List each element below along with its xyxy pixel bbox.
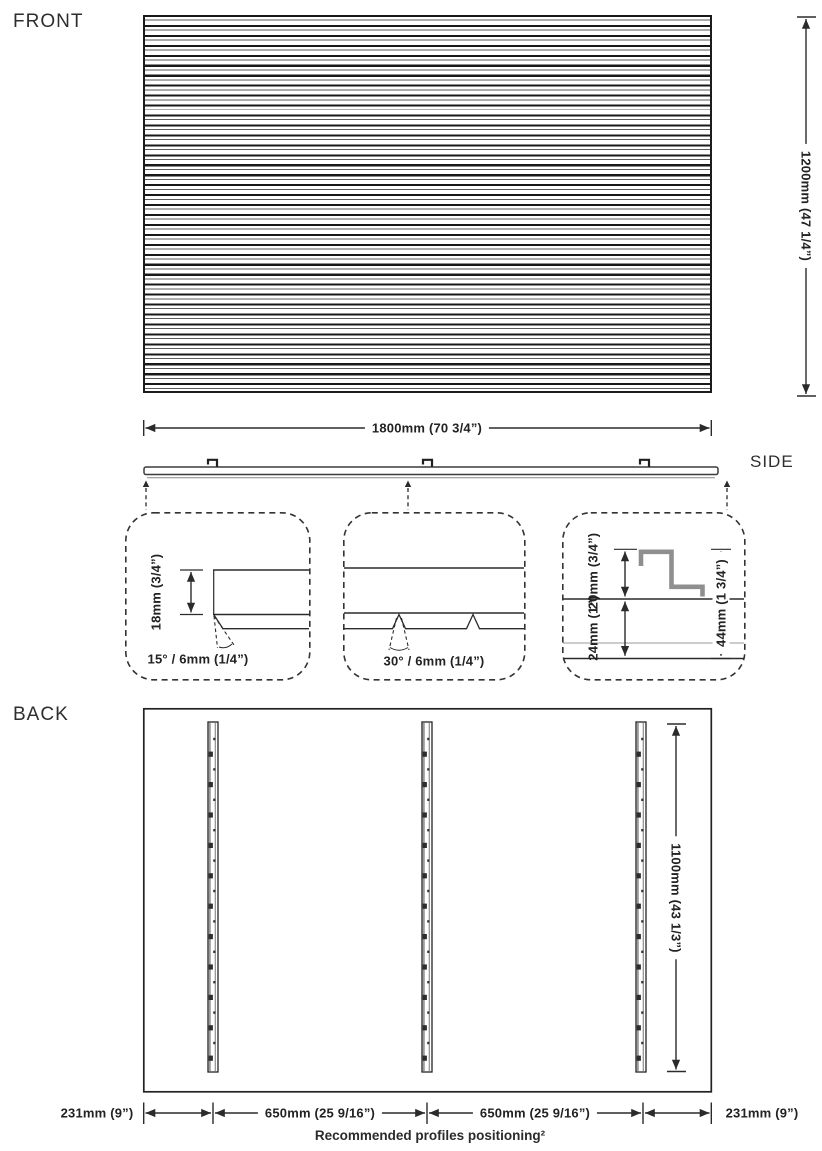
back-profile-rail-middle — [422, 722, 432, 1072]
back-profile-height-dimension-label: 1100mm (43 1/3”) — [668, 836, 685, 959]
back-profile-rail-right — [636, 722, 646, 1072]
side-section-label: SIDE — [750, 452, 794, 472]
front-section-label: FRONT — [13, 11, 83, 33]
side-panel-bar — [144, 467, 718, 478]
profiles-positioning-caption: Recommended profiles positioning² — [315, 1128, 545, 1143]
back-left-offset-dimension-label: 231mm (9”) — [61, 1106, 134, 1121]
detail-slat-groove-drawing — [344, 568, 524, 650]
back-spacing-dimensions — [144, 1103, 712, 1125]
front-height-dimension-label: 1200mm (47 1/4”) — [798, 144, 815, 268]
drawing-linework — [0, 0, 822, 1151]
back-right-offset-dimension-label: 231mm (9”) — [726, 1106, 799, 1121]
technical-drawing-sheet: FRONT SIDE BACK 1200mm (47 1/4”) 1800mm … — [0, 0, 822, 1151]
slat-chamfer-dimension-label: 15° / 6mm (1/4”) — [148, 652, 249, 667]
back-spacing-left-dimension-label: 650mm (25 9/16”) — [258, 1105, 382, 1122]
mounting-clip-icons — [208, 460, 649, 467]
back-section-label: BACK — [13, 704, 69, 726]
clip-gap-dimension-label: 24mm (1”) — [586, 595, 601, 660]
clip-total-dimension-label: 44mm (1 3/4”) — [713, 552, 730, 654]
detail-slat-edge-drawing — [180, 570, 309, 648]
front-width-dimension-label: 1800mm (70 3/4”) — [365, 420, 489, 437]
detail-leader-lines — [143, 481, 730, 511]
back-profile-rail-left — [208, 722, 218, 1072]
back-spacing-right-dimension-label: 650mm (25 9/16”) — [473, 1105, 597, 1122]
slat-thickness-dimension-label: 18mm (3/4”) — [149, 554, 164, 631]
slat-groove-dimension-label: 30° / 6mm (1/4”) — [384, 654, 485, 669]
